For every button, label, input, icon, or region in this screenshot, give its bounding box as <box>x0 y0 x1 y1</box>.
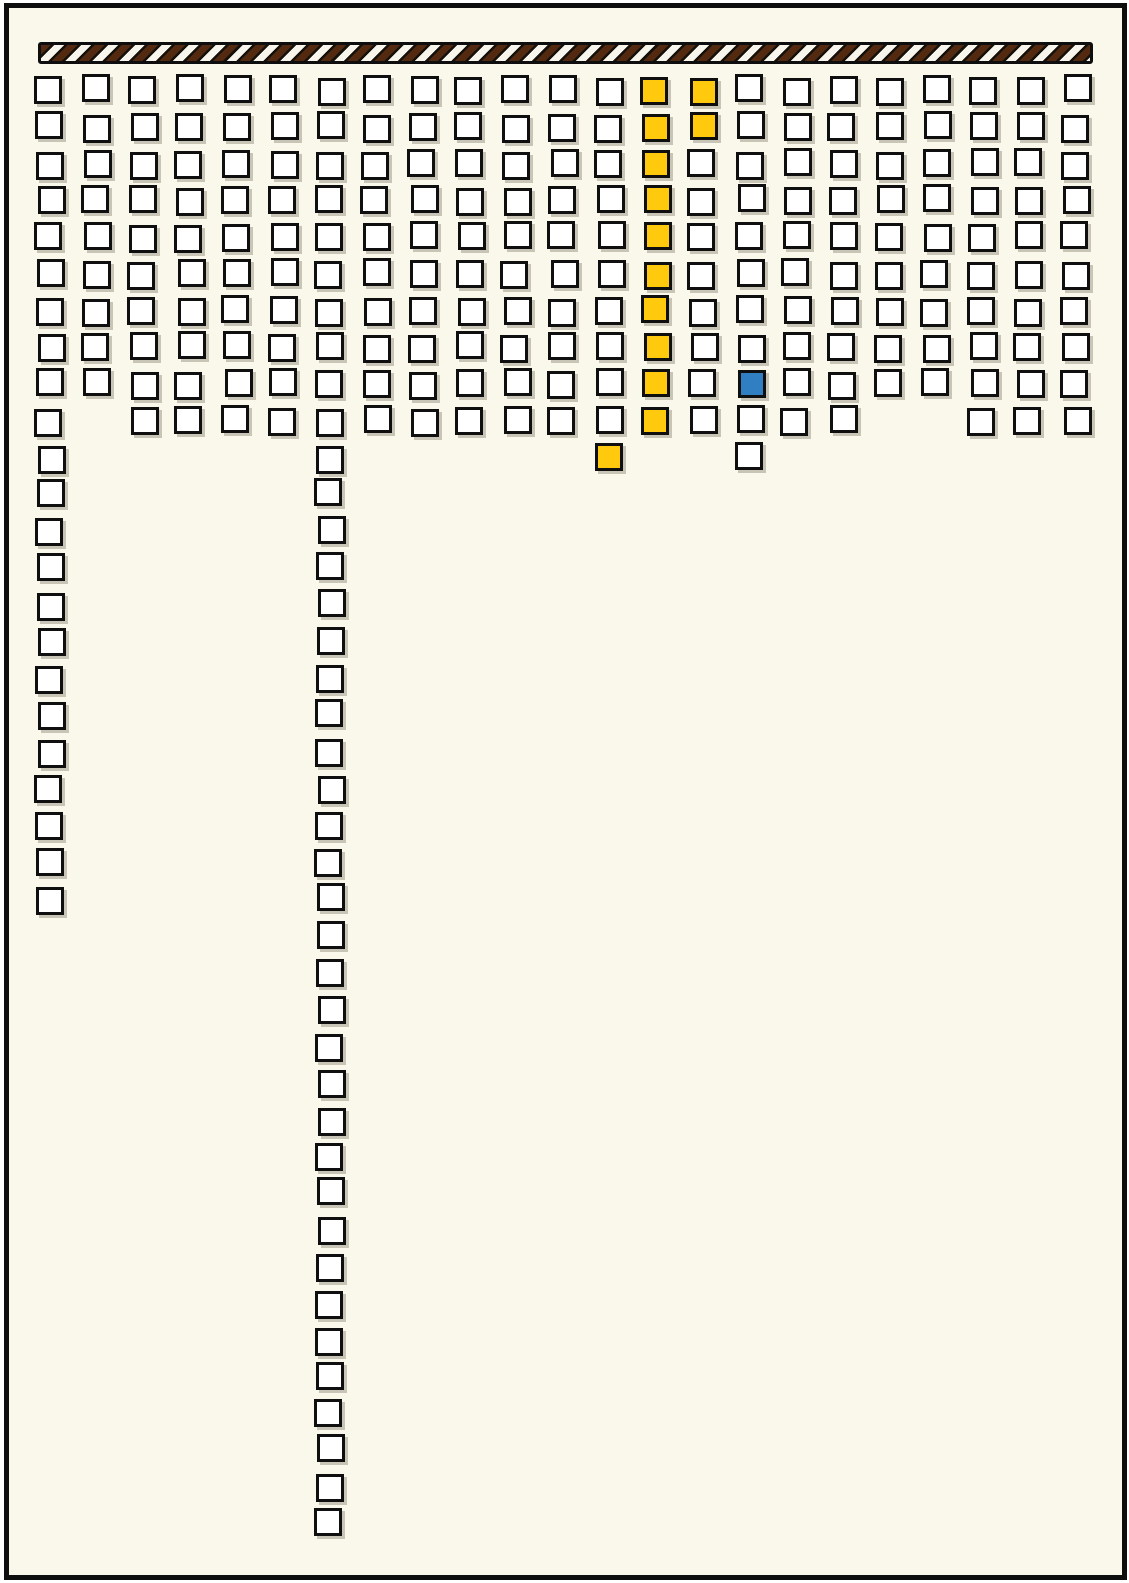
grid-cell[interactable] <box>315 299 343 327</box>
grid-cell[interactable] <box>921 368 949 396</box>
grid-cell[interactable] <box>129 225 157 253</box>
grid-cell[interactable] <box>783 368 811 396</box>
grid-cell[interactable] <box>317 1177 345 1205</box>
grid-cell[interactable] <box>501 75 529 103</box>
grid-cell[interactable] <box>316 1254 344 1282</box>
grid-cell[interactable] <box>971 369 999 397</box>
grid-cell[interactable] <box>316 665 344 693</box>
grid-cell[interactable] <box>222 150 250 178</box>
grid-cell[interactable] <box>38 702 66 730</box>
grid-cell[interactable] <box>500 335 528 363</box>
grid-cell[interactable] <box>363 370 391 398</box>
grid-cell[interactable] <box>1063 186 1091 214</box>
grid-cell[interactable] <box>35 518 63 546</box>
grid-cell[interactable] <box>317 883 345 911</box>
grid-cell[interactable] <box>783 78 811 106</box>
grid-cell[interactable] <box>316 446 344 474</box>
grid-cell[interactable] <box>971 187 999 215</box>
grid-cell[interactable] <box>315 699 343 727</box>
grid-cell[interactable] <box>502 115 530 143</box>
grid-cell[interactable] <box>784 148 812 176</box>
grid-cell[interactable] <box>82 74 110 102</box>
grid-cell[interactable] <box>784 187 812 215</box>
grid-cell[interactable] <box>596 332 624 360</box>
grid-cell[interactable] <box>176 188 204 216</box>
grid-cell[interactable] <box>84 150 112 178</box>
grid-cell[interactable] <box>83 115 111 143</box>
grid-cell[interactable] <box>595 297 623 325</box>
grid-cell[interactable] <box>410 260 438 288</box>
grid-cell[interactable] <box>223 331 251 359</box>
grid-cell[interactable] <box>127 297 155 325</box>
grid-cell[interactable] <box>36 298 64 326</box>
grid-cell[interactable] <box>455 407 483 435</box>
grid-cell[interactable] <box>314 849 342 877</box>
grid-cell[interactable] <box>828 372 856 400</box>
grid-cell[interactable] <box>128 76 156 104</box>
grid-cell[interactable] <box>37 479 65 507</box>
grid-cell[interactable] <box>688 369 716 397</box>
grid-cell[interactable] <box>968 224 996 252</box>
grid-cell[interactable] <box>687 188 715 216</box>
grid-cell[interactable] <box>920 260 948 288</box>
grid-cell[interactable] <box>1013 333 1041 361</box>
grid-cell[interactable] <box>314 261 342 289</box>
grid-cell[interactable] <box>174 372 202 400</box>
grid-cell[interactable] <box>830 76 858 104</box>
grid-cell[interactable] <box>271 112 299 140</box>
poster-canvas <box>0 0 1129 1583</box>
grid-cell[interactable] <box>411 76 439 104</box>
grid-cell[interactable] <box>270 296 298 324</box>
grid-cell[interactable] <box>644 185 672 213</box>
grid-cell[interactable] <box>595 443 623 471</box>
grid-cell[interactable] <box>596 78 624 106</box>
grid-cell[interactable] <box>363 75 391 103</box>
grid-cell[interactable] <box>318 516 346 544</box>
grid-cell[interactable] <box>174 151 202 179</box>
grid-cell[interactable] <box>131 113 159 141</box>
grid-cell[interactable] <box>641 295 669 323</box>
grid-cell[interactable] <box>409 113 437 141</box>
grid-cell[interactable] <box>361 152 389 180</box>
grid-cell[interactable] <box>874 335 902 363</box>
grid-cell[interactable] <box>1017 77 1045 105</box>
grid-cell[interactable] <box>176 74 204 102</box>
grid-cell[interactable] <box>736 295 764 323</box>
grid-cell[interactable] <box>364 298 392 326</box>
grid-cell[interactable] <box>34 775 62 803</box>
grid-cell[interactable] <box>875 223 903 251</box>
grid-cell[interactable] <box>316 332 344 360</box>
grid-cell[interactable] <box>409 297 437 325</box>
grid-cell[interactable] <box>315 1034 343 1062</box>
grid-cell[interactable] <box>735 222 763 250</box>
grid-cell[interactable] <box>923 335 951 363</box>
grid-cell[interactable] <box>690 406 718 434</box>
grid-cell[interactable] <box>34 409 62 437</box>
grid-cell[interactable] <box>315 739 343 767</box>
grid-cell[interactable] <box>642 150 670 178</box>
grid-cell[interactable] <box>970 332 998 360</box>
grid-cell[interactable] <box>876 152 904 180</box>
grid-cell[interactable] <box>689 299 717 327</box>
grid-cell[interactable] <box>971 148 999 176</box>
grid-cell[interactable] <box>1014 299 1042 327</box>
grid-cell[interactable] <box>408 335 436 363</box>
grid-cell[interactable] <box>594 150 622 178</box>
grid-cell[interactable] <box>1060 297 1088 325</box>
grid-cell[interactable] <box>315 370 343 398</box>
grid-cell[interactable] <box>500 261 528 289</box>
grid-cell[interactable] <box>783 332 811 360</box>
grid-cell[interactable] <box>127 262 155 290</box>
grid-cell[interactable] <box>687 262 715 290</box>
grid-cell[interactable] <box>874 369 902 397</box>
grid-cell[interactable] <box>318 1108 346 1136</box>
grid-cell[interactable] <box>364 405 392 433</box>
grid-cell[interactable] <box>223 259 251 287</box>
grid-cell[interactable] <box>504 406 532 434</box>
grid-cell[interactable] <box>411 409 439 437</box>
grid-cell[interactable] <box>316 1474 344 1502</box>
grid-cell[interactable] <box>315 1328 343 1356</box>
grid-cell[interactable] <box>547 371 575 399</box>
grid-cell[interactable] <box>81 333 109 361</box>
grid-cell[interactable] <box>268 186 296 214</box>
grid-cell[interactable] <box>456 369 484 397</box>
grid-cell[interactable] <box>830 262 858 290</box>
grid-cell[interactable] <box>1015 187 1043 215</box>
grid-cell[interactable] <box>1015 261 1043 289</box>
grid-cell[interactable] <box>37 553 65 581</box>
grid-cell[interactable] <box>316 1362 344 1390</box>
grid-cell[interactable] <box>784 296 812 324</box>
grid-cell[interactable] <box>315 223 343 251</box>
grid-cell[interactable] <box>504 297 532 325</box>
grid-cell[interactable] <box>504 188 532 216</box>
grid-cell[interactable] <box>738 335 766 363</box>
grid-cell[interactable] <box>551 260 579 288</box>
grid-cell[interactable] <box>827 333 855 361</box>
grid-cell[interactable] <box>318 1070 346 1098</box>
grid-cell[interactable] <box>1014 148 1042 176</box>
grid-cell[interactable] <box>174 406 202 434</box>
grid-cell[interactable] <box>225 369 253 397</box>
grid-cell[interactable] <box>83 261 111 289</box>
grid-cell[interactable] <box>268 408 296 436</box>
grid-cell[interactable] <box>1015 221 1043 249</box>
grid-cell[interactable] <box>1061 152 1089 180</box>
grid-cell[interactable] <box>221 405 249 433</box>
grid-cell[interactable] <box>318 1217 346 1245</box>
grid-cell[interactable] <box>549 75 577 103</box>
grid-cell[interactable] <box>36 848 64 876</box>
grid-cell[interactable] <box>1064 74 1092 102</box>
grid-cell[interactable] <box>642 369 670 397</box>
grid-cell[interactable] <box>178 331 206 359</box>
grid-cell[interactable] <box>314 478 342 506</box>
grid-cell[interactable] <box>690 112 718 140</box>
grid-cell[interactable] <box>409 372 437 400</box>
grid-cell[interactable] <box>38 628 66 656</box>
grid-cell[interactable] <box>458 222 486 250</box>
grid-cell[interactable] <box>37 593 65 621</box>
grid-cell[interactable] <box>271 258 299 286</box>
grid-cell[interactable] <box>35 812 63 840</box>
grid-cell[interactable] <box>547 221 575 249</box>
grid-cell[interactable] <box>316 152 344 180</box>
grid-cell[interactable] <box>551 149 579 177</box>
grid-cell[interactable] <box>644 222 672 250</box>
grid-cell[interactable] <box>784 113 812 141</box>
grid-cell[interactable] <box>830 405 858 433</box>
grid-cell[interactable] <box>315 185 343 213</box>
grid-cell[interactable] <box>221 295 249 323</box>
grid-cell[interactable] <box>317 627 345 655</box>
grid-cell[interactable] <box>84 222 112 250</box>
grid-cell[interactable] <box>738 370 766 398</box>
grid-cell[interactable] <box>224 75 252 103</box>
grid-cell[interactable] <box>547 407 575 435</box>
grid-cell[interactable] <box>737 111 765 139</box>
grid-cell[interactable] <box>318 589 346 617</box>
grid-cell[interactable] <box>410 221 438 249</box>
grid-cell[interactable] <box>221 186 249 214</box>
grid-cell[interactable] <box>317 111 345 139</box>
grid-cell[interactable] <box>315 1291 343 1319</box>
grid-cell[interactable] <box>411 185 439 213</box>
grid-cell[interactable] <box>1062 333 1090 361</box>
grid-cell[interactable] <box>687 223 715 251</box>
grid-cell[interactable] <box>597 185 625 213</box>
grid-cell[interactable] <box>314 1508 342 1536</box>
grid-cell[interactable] <box>456 331 484 359</box>
grid-cell[interactable] <box>363 115 391 143</box>
grid-cell[interactable] <box>920 299 948 327</box>
grid-cell[interactable] <box>317 1434 345 1462</box>
grid-cell[interactable] <box>735 442 763 470</box>
grid-cell[interactable] <box>548 114 576 142</box>
grid-cell[interactable] <box>174 225 202 253</box>
grid-cell[interactable] <box>456 260 484 288</box>
grid-cell[interactable] <box>363 335 391 363</box>
grid-cell[interactable] <box>640 77 668 105</box>
grid-cell[interactable] <box>315 812 343 840</box>
grid-cell[interactable] <box>178 259 206 287</box>
grid-cell[interactable] <box>735 74 763 102</box>
grid-cell[interactable] <box>316 552 344 580</box>
grid-cell[interactable] <box>1017 370 1045 398</box>
grid-cell[interactable] <box>736 152 764 180</box>
grid-cell[interactable] <box>1064 407 1092 435</box>
grid-cell[interactable] <box>502 152 530 180</box>
grid-cell[interactable] <box>38 740 66 768</box>
grid-cell[interactable] <box>222 224 250 252</box>
grid-cell[interactable] <box>34 76 62 104</box>
grid-cell[interactable] <box>923 184 951 212</box>
grid-cell[interactable] <box>82 299 110 327</box>
grid-cell[interactable] <box>363 258 391 286</box>
grid-cell[interactable] <box>598 260 626 288</box>
grid-cell[interactable] <box>781 258 809 286</box>
grid-cell[interactable] <box>970 112 998 140</box>
grid-cell[interactable] <box>38 446 66 474</box>
grid-cell[interactable] <box>1017 112 1045 140</box>
grid-cell[interactable] <box>130 152 158 180</box>
grid-cell[interactable] <box>38 334 66 362</box>
grid-cell[interactable] <box>1062 262 1090 290</box>
grid-cell[interactable] <box>455 149 483 177</box>
grid-cell[interactable] <box>644 262 672 290</box>
grid-cell[interactable] <box>454 112 482 140</box>
grid-cell[interactable] <box>783 221 811 249</box>
grid-cell[interactable] <box>504 221 532 249</box>
grid-cell[interactable] <box>967 297 995 325</box>
grid-cell[interactable] <box>268 334 296 362</box>
grid-cell[interactable] <box>363 223 391 251</box>
grid-cell[interactable] <box>876 78 904 106</box>
grid-cell[interactable] <box>38 186 66 214</box>
grid-cell[interactable] <box>691 333 719 361</box>
grid-cell[interactable] <box>876 298 904 326</box>
grid-cell[interactable] <box>315 1143 343 1171</box>
grid-cell[interactable] <box>458 298 486 326</box>
grid-cell[interactable] <box>504 368 532 396</box>
grid-cell[interactable] <box>130 332 158 360</box>
grid-cell[interactable] <box>360 186 388 214</box>
grid-cell[interactable] <box>318 996 346 1024</box>
grid-cell[interactable] <box>131 372 159 400</box>
grid-cell[interactable] <box>318 776 346 804</box>
grid-cell[interactable] <box>317 921 345 949</box>
grid-cell[interactable] <box>1013 407 1041 435</box>
grid-cell[interactable] <box>316 959 344 987</box>
striped-header-bar <box>38 42 1093 64</box>
grid-cell[interactable] <box>81 185 109 213</box>
grid-cell[interactable] <box>967 262 995 290</box>
grid-cell[interactable] <box>35 666 63 694</box>
grid-cell[interactable] <box>83 368 111 396</box>
grid-cell[interactable] <box>37 259 65 287</box>
grid-cell[interactable] <box>1060 221 1088 249</box>
grid-cell[interactable] <box>454 77 482 105</box>
grid-cell[interactable] <box>827 113 855 141</box>
grid-cell[interactable] <box>314 1399 342 1427</box>
grid-cell[interactable] <box>269 368 297 396</box>
grid-cell[interactable] <box>923 75 951 103</box>
grid-cell[interactable] <box>831 297 859 325</box>
grid-cell[interactable] <box>969 77 997 105</box>
grid-cell[interactable] <box>175 113 203 141</box>
grid-cell[interactable] <box>596 406 624 434</box>
grid-cell[interactable] <box>594 115 622 143</box>
grid-cell[interactable] <box>36 368 64 396</box>
grid-cell[interactable] <box>316 409 344 437</box>
grid-cell[interactable] <box>548 299 576 327</box>
grid-cell[interactable] <box>1061 115 1089 143</box>
grid-cell[interactable] <box>223 113 251 141</box>
grid-cell[interactable] <box>1060 370 1088 398</box>
grid-cell[interactable] <box>780 408 808 436</box>
grid-cell[interactable] <box>829 187 857 215</box>
grid-cell[interactable] <box>35 111 63 139</box>
grid-cell[interactable] <box>269 75 297 103</box>
grid-cell[interactable] <box>924 111 952 139</box>
grid-cell[interactable] <box>318 78 346 106</box>
grid-cell[interactable] <box>923 149 951 177</box>
grid-cell[interactable] <box>641 407 669 435</box>
grid-cell[interactable] <box>737 259 765 287</box>
grid-cell[interactable] <box>548 332 576 360</box>
grid-cell[interactable] <box>642 114 670 142</box>
grid-cell[interactable] <box>598 221 626 249</box>
grid-cell[interactable] <box>456 188 484 216</box>
grid-cell[interactable] <box>690 78 718 106</box>
grid-cell[interactable] <box>271 223 299 251</box>
grid-cell[interactable] <box>738 184 766 212</box>
grid-cell[interactable] <box>34 222 62 250</box>
grid-cell[interactable] <box>876 112 904 140</box>
grid-cell[interactable] <box>687 149 715 177</box>
grid-cell[interactable] <box>596 368 624 396</box>
grid-cell[interactable] <box>36 152 64 180</box>
grid-cell[interactable] <box>178 298 206 326</box>
grid-cell[interactable] <box>737 405 765 433</box>
grid-cell[interactable] <box>131 407 159 435</box>
grid-cell[interactable] <box>830 150 858 178</box>
grid-cell[interactable] <box>548 186 576 214</box>
grid-cell[interactable] <box>271 151 299 179</box>
grid-cell[interactable] <box>924 224 952 252</box>
grid-cell[interactable] <box>407 149 435 177</box>
grid-cell[interactable] <box>644 333 672 361</box>
grid-cell[interactable] <box>36 887 64 915</box>
grid-cell[interactable] <box>967 408 995 436</box>
grid-cell[interactable] <box>877 185 905 213</box>
grid-cell[interactable] <box>830 222 858 250</box>
grid-cell[interactable] <box>129 185 157 213</box>
grid-cell[interactable] <box>875 262 903 290</box>
